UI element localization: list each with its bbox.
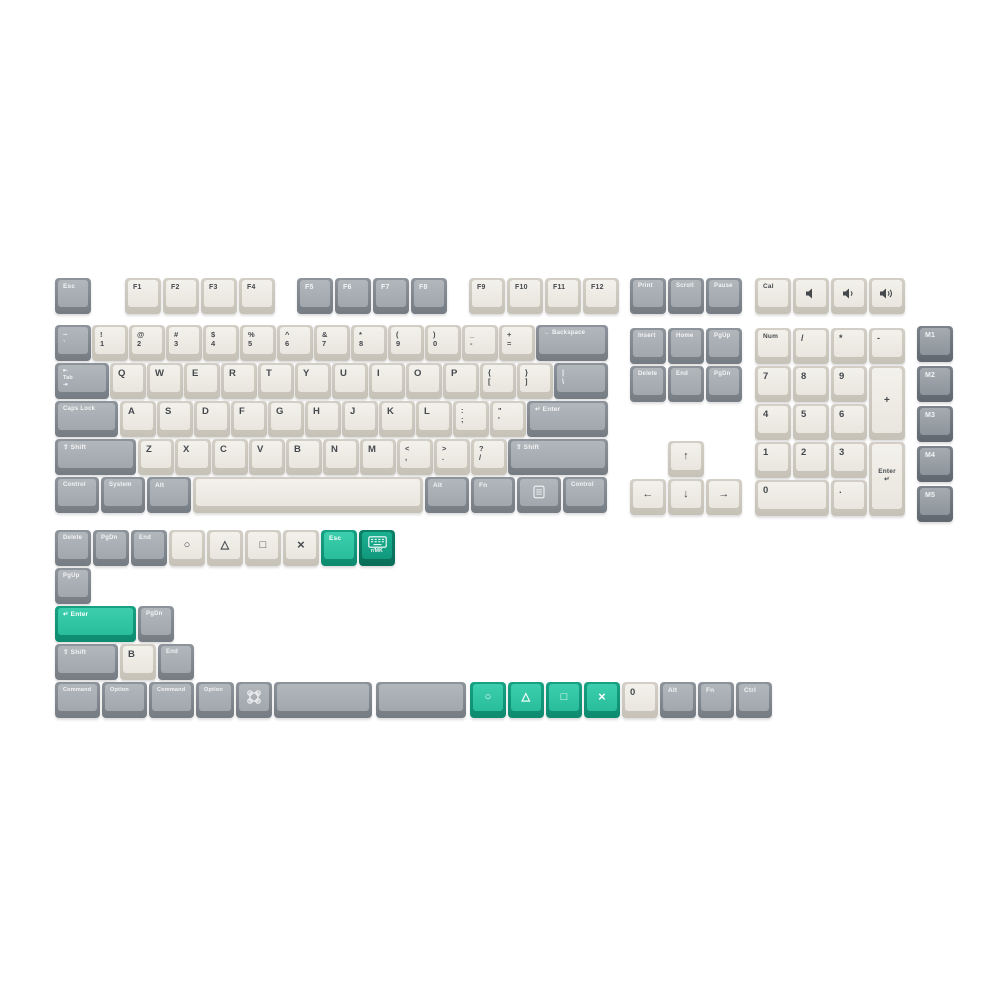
key-f6: F6 [335, 278, 371, 314]
key-legend: PgDn [101, 535, 117, 543]
key-legend: Alt [433, 482, 442, 490]
key-m1: M1 [917, 326, 953, 362]
key-pause: Pause [706, 278, 742, 314]
key-legend: V [257, 444, 264, 456]
key-legend: ↵ Enter [63, 611, 88, 619]
key-legend: \ [562, 377, 564, 387]
key-legend: . [839, 485, 842, 497]
key-numpad-1: 1 [755, 442, 791, 478]
key-numpad-9: 9 [831, 366, 867, 402]
key-legend: U [340, 368, 347, 380]
key-legend: 8 [801, 371, 806, 383]
key-legend: P [451, 368, 458, 380]
key-legend: Control [571, 482, 594, 490]
key-extra-page-down: PgDn [93, 530, 129, 566]
key-m: M [360, 439, 396, 475]
key-legend: C [220, 444, 227, 456]
key-legend: 5 [248, 339, 255, 349]
key-z: Z [138, 439, 174, 475]
key-legend: # [174, 330, 178, 340]
key-m5: M5 [917, 486, 953, 522]
key-legend: F3 [209, 283, 218, 292]
key-caps-lock: Caps Lock [55, 401, 118, 437]
key-numpad-plus: + [869, 366, 905, 440]
key-legend: F [239, 406, 245, 418]
key-tab: ⇤Tab⇥ [55, 363, 109, 399]
key-left-alt: Alt [147, 477, 191, 513]
key-f7: F7 [373, 278, 409, 314]
key-legend: × [598, 689, 606, 706]
key-legend: Z [146, 444, 152, 456]
key-system: System [101, 477, 145, 513]
key-fn-extra: Fn [698, 682, 734, 718]
key-legend: E [192, 368, 199, 380]
key-quote: "' [490, 401, 526, 437]
key-3: #3 [166, 325, 202, 361]
key-legend: F1 [133, 283, 142, 292]
key-legend: ; [461, 415, 464, 425]
key-legend: Home [676, 333, 693, 341]
key-b: B [286, 439, 322, 475]
key-legend: Insert [638, 333, 656, 341]
key-m3: M3 [917, 406, 953, 442]
key-arrow-down: ↓ [668, 479, 704, 515]
key-legend: 3 [174, 339, 178, 349]
key-legend: S [165, 406, 172, 418]
key-numpad-dot: . [831, 480, 867, 516]
key-legend: PgUp [63, 573, 79, 581]
key-period: >. [434, 439, 470, 475]
key-num-lock: Num [755, 328, 791, 364]
key-numpad-2: 2 [793, 442, 829, 478]
key-numpad-5: 5 [793, 404, 829, 440]
key-legend: Cal [763, 283, 774, 291]
key-legend: { [488, 368, 491, 378]
key-legend: _ [470, 330, 474, 340]
key-right-shift: ⇧ Shift [508, 439, 608, 475]
key-legend: * [839, 333, 843, 345]
key-legend: R [229, 368, 236, 380]
key-f5: F5 [297, 278, 333, 314]
key-fn: Fn [471, 477, 515, 513]
key-insert: Insert [630, 328, 666, 364]
key-legend: ← [642, 487, 653, 501]
key-legend: PgDn [714, 371, 730, 379]
key-menu [517, 477, 561, 513]
key-4: $4 [203, 325, 239, 361]
key-numpad-6: 6 [831, 404, 867, 440]
key-r: R [221, 363, 257, 399]
key-legend: F6 [343, 283, 352, 292]
key-o: O [406, 363, 442, 399]
key-cross-white: × [283, 530, 319, 566]
key-legend: F2 [171, 283, 180, 292]
key-legend: Alt [155, 482, 164, 490]
key-m4: M4 [917, 446, 953, 482]
key-esc-teal: Esc [321, 530, 357, 566]
key-legend: Delete [63, 535, 82, 543]
key-legend: } [525, 368, 528, 378]
key-legend: ↑ [683, 449, 689, 463]
key-legend: > [442, 444, 447, 454]
key-ctrl-extra: Ctrl [736, 682, 772, 718]
key-page-up: PgUp [706, 328, 742, 364]
key-legend: Command [157, 687, 185, 694]
key-tilde: ~` [55, 325, 91, 361]
key-legend: 0 [433, 339, 437, 349]
key-legend: I [377, 368, 380, 380]
key-legend: 0 [763, 485, 768, 497]
key-f4: F4 [239, 278, 275, 314]
key-legend: Y [303, 368, 310, 380]
key-legend: N [331, 444, 338, 456]
key-extra-delete: Delete [55, 530, 91, 566]
key-legend: + [884, 394, 890, 407]
key-5: %5 [240, 325, 276, 361]
key-legend: F12 [591, 283, 604, 292]
key-e: E [184, 363, 220, 399]
key-right-alt: Alt [425, 477, 469, 513]
key-legend: 9 [839, 371, 844, 383]
key-legend: K [387, 406, 394, 418]
key-legend: M1 [925, 331, 935, 340]
key-legend: Alt [668, 687, 677, 695]
key-numpad-4: 4 [755, 404, 791, 440]
key-legend: ⇤ [63, 368, 73, 375]
key-legend: . [442, 453, 447, 463]
key-legend: M5 [925, 491, 935, 500]
key-arrow-left: ← [630, 479, 666, 515]
key-legend: Fn [706, 687, 714, 695]
key-numpad-minus: - [869, 328, 905, 364]
key-legend: * [359, 330, 363, 340]
speaker-mute-icon [805, 287, 818, 300]
key-legend: W [155, 368, 164, 380]
key-legend: % [248, 330, 255, 340]
key-legend: < [405, 444, 410, 454]
key-8: *8 [351, 325, 387, 361]
key-home: Home [668, 328, 704, 364]
key-esc: Esc [55, 278, 91, 314]
key-legend: 6 [285, 339, 290, 349]
key-legend: F8 [419, 283, 428, 292]
key-legend: 0 [630, 687, 635, 699]
key-legend: Scroll [676, 283, 694, 291]
key-legend: Option [110, 687, 129, 694]
key-circle-white: ○ [169, 530, 205, 566]
key-legend: Esc [329, 535, 341, 543]
key-f12: F12 [583, 278, 619, 314]
key-n: N [323, 439, 359, 475]
key-legend: Ctrl [744, 687, 756, 695]
key-legend: 7 [763, 371, 768, 383]
key-minus: _- [462, 325, 498, 361]
key-legend: $ [211, 330, 215, 340]
key-legend: PgUp [714, 333, 730, 341]
key-numpad-multiply: * [831, 328, 867, 364]
key-d: D [194, 401, 230, 437]
key-left-shift: ⇧ Shift [55, 439, 136, 475]
key-k: K [379, 401, 415, 437]
key-right-control: Control [563, 477, 607, 513]
key-command-symbol [236, 682, 272, 718]
key-1: !1 [92, 325, 128, 361]
key-i: I [369, 363, 405, 399]
key-legend: ' [498, 415, 502, 425]
key-legend: / [801, 333, 804, 345]
key-blank-2 [376, 682, 466, 718]
key-legend: ↓ [683, 487, 689, 501]
key-legend: & [322, 330, 328, 340]
key-6: ^6 [277, 325, 313, 361]
key-extra-end: End [131, 530, 167, 566]
key-left-bracket: {[ [480, 363, 516, 399]
key-a: A [120, 401, 156, 437]
key-legend: G [276, 406, 284, 418]
key-f: F [231, 401, 267, 437]
key-left-control: Control [55, 477, 99, 513]
key-backspace: ← Backspace [536, 325, 608, 361]
key-legend: D [202, 406, 209, 418]
key-triangle-teal: △ [508, 682, 544, 718]
key-legend: F9 [477, 283, 486, 292]
key-extra-0: 0 [622, 682, 658, 718]
key-legend: B [128, 649, 135, 661]
key-enter: ↵ Enter [527, 401, 608, 437]
key-enter-teal: ↵ Enter [55, 606, 136, 642]
key-numpad-3: 3 [831, 442, 867, 478]
key-command-2: Command [149, 682, 194, 718]
key-legend: ! [100, 330, 104, 340]
key-legend: ) [433, 330, 437, 340]
key-legend: @ [137, 330, 145, 340]
key-semicolon: :; [453, 401, 489, 437]
key-legend: 1 [100, 339, 104, 349]
key-legend: Delete [638, 371, 657, 379]
key-legend: F7 [381, 283, 390, 292]
key-legend: : [461, 406, 464, 416]
key-page-down: PgDn [706, 366, 742, 402]
key-legend: ← Backspace [544, 330, 585, 338]
key-option-2: Option [196, 682, 234, 718]
key-space [193, 477, 423, 513]
key-legend: - [877, 333, 880, 345]
key-legend: ` [63, 339, 68, 349]
key-h: H [305, 401, 341, 437]
key-legend: + [507, 330, 512, 340]
key-legend: 2 [801, 447, 806, 459]
key-numpad-7: 7 [755, 366, 791, 402]
key-legend: □ [260, 538, 267, 552]
key-equals: += [499, 325, 535, 361]
key-legend: × [297, 537, 305, 554]
key-cal: Cal [755, 278, 791, 314]
key-legend: □ [561, 690, 568, 704]
key-legend: ⇧ Shift [63, 444, 86, 452]
key-w: W [147, 363, 183, 399]
key-v: V [249, 439, 285, 475]
key-legend: M [368, 444, 376, 456]
key-legend: | [562, 368, 564, 378]
key-f8: F8 [411, 278, 447, 314]
key-extra-page-up: PgUp [55, 568, 91, 604]
key-legend: " [498, 406, 502, 416]
key-legend: 9 [396, 339, 400, 349]
key-legend: F10 [515, 283, 528, 292]
key-numpad-8: 8 [793, 366, 829, 402]
key-legend: Esc [63, 283, 75, 291]
key-legend: ? [479, 444, 484, 454]
key-legend: M3 [925, 411, 935, 420]
key-mute [793, 278, 829, 314]
key-legend: 7 [322, 339, 328, 349]
key-j: J [342, 401, 378, 437]
key-numpad-enter: Enter↵ [869, 442, 905, 516]
key-legend: r/MK [371, 548, 383, 555]
key-legend: PgDn [146, 611, 162, 619]
key-slash: ?/ [471, 439, 507, 475]
key-circle-teal: ○ [470, 682, 506, 718]
key-legend: End [139, 535, 151, 543]
key-legend: Q [118, 368, 126, 380]
key-f1: F1 [125, 278, 161, 314]
key-p: P [443, 363, 479, 399]
key-legend: △ [522, 690, 531, 704]
key-legend: Option [204, 687, 223, 694]
key-legend: 1 [763, 447, 768, 459]
key-print: Print [630, 278, 666, 314]
key-legend: ] [525, 377, 528, 387]
key-legend: Tab [63, 375, 73, 382]
key-f11: F11 [545, 278, 581, 314]
key-alt-extra: Alt [660, 682, 696, 718]
key-numpad-divide: / [793, 328, 829, 364]
key-l: L [416, 401, 452, 437]
key-legend: △ [221, 538, 230, 552]
key-f9: F9 [469, 278, 505, 314]
key-legend: Enter [878, 468, 896, 476]
key-legend: F4 [247, 283, 256, 292]
key-extra-b: B [120, 644, 156, 680]
key-end: End [668, 366, 704, 402]
key-legend: ○ [184, 538, 191, 552]
key-legend: 4 [763, 409, 768, 421]
key-legend: X [183, 444, 190, 456]
speaker-high-icon [879, 287, 895, 300]
key-cross-teal: × [584, 682, 620, 718]
key-legend: F5 [305, 283, 314, 292]
key-legend: ( [396, 330, 400, 340]
key-legend: Caps Lock [63, 406, 95, 414]
key-numpad-0: 0 [755, 480, 829, 516]
key-blank-1 [274, 682, 372, 718]
key-legend: = [507, 339, 512, 349]
key-comma: <, [397, 439, 433, 475]
key-t: T [258, 363, 294, 399]
key-g: G [268, 401, 304, 437]
speaker-low-icon [842, 287, 856, 300]
menu-icon [533, 485, 545, 499]
key-f3: F3 [201, 278, 237, 314]
key-legend: M2 [925, 371, 935, 380]
key-backslash: |\ [554, 363, 608, 399]
key-legend: ○ [485, 690, 492, 704]
key-scroll: Scroll [668, 278, 704, 314]
key-arrow-right: → [706, 479, 742, 515]
key-legend: Fn [479, 482, 487, 490]
key-legend: 3 [839, 447, 844, 459]
key-2: @2 [129, 325, 165, 361]
key-legend: Num [763, 333, 778, 341]
key-legend: ⇧ Shift [63, 649, 86, 657]
key-legend: 8 [359, 339, 363, 349]
key-x: X [175, 439, 211, 475]
key-9: (9 [388, 325, 424, 361]
key-delete: Delete [630, 366, 666, 402]
key-extra-page-down-2: PgDn [138, 606, 174, 642]
key-legend: 2 [137, 339, 145, 349]
key-legend: - [470, 339, 474, 349]
key-command-1: Command [55, 682, 100, 718]
key-legend: T [266, 368, 272, 380]
key-extra-end-2: End [158, 644, 194, 680]
key-legend: Command [63, 687, 91, 694]
key-legend: 4 [211, 339, 215, 349]
key-legend: M4 [925, 451, 935, 460]
key-legend: System [109, 482, 132, 490]
key-0: )0 [425, 325, 461, 361]
key-legend: ↵ Enter [535, 406, 560, 414]
key-legend: F11 [553, 283, 565, 292]
key-extra-shift: ⇧ Shift [55, 644, 118, 680]
key-right-bracket: }] [517, 363, 553, 399]
key-square-teal: □ [546, 682, 582, 718]
key-legend: J [350, 406, 355, 418]
key-legend: / [479, 453, 484, 463]
key-legend: Print [638, 283, 653, 291]
key-legend: End [166, 649, 178, 657]
key-legend: Control [63, 482, 86, 490]
key-legend: Pause [714, 283, 733, 291]
key-legend: O [414, 368, 422, 380]
key-legend: [ [488, 377, 491, 387]
key-legend: B [294, 444, 301, 456]
key-s: S [157, 401, 193, 437]
key-u: U [332, 363, 368, 399]
key-legend: L [424, 406, 430, 418]
key-q: Q [110, 363, 146, 399]
key-volume-down [831, 278, 867, 314]
key-legend: , [405, 453, 410, 463]
command-icon [246, 689, 262, 705]
key-rmk-novelty: r/MK [359, 530, 395, 566]
keycap-set-product-image: EscF1F2F3F4F5F6F7F8F9F10F11F12PrintScrol… [0, 0, 1000, 1000]
key-legend: ~ [63, 330, 68, 340]
keyboard-icon [368, 536, 387, 548]
key-legend: A [128, 406, 135, 418]
key-legend: 5 [801, 409, 806, 421]
key-square-white: □ [245, 530, 281, 566]
key-m2: M2 [917, 366, 953, 402]
key-volume-up [869, 278, 905, 314]
key-y: Y [295, 363, 331, 399]
key-c: C [212, 439, 248, 475]
key-option-1: Option [102, 682, 147, 718]
key-legend: → [718, 487, 729, 501]
key-7: &7 [314, 325, 350, 361]
key-triangle-white: △ [207, 530, 243, 566]
key-f2: F2 [163, 278, 199, 314]
